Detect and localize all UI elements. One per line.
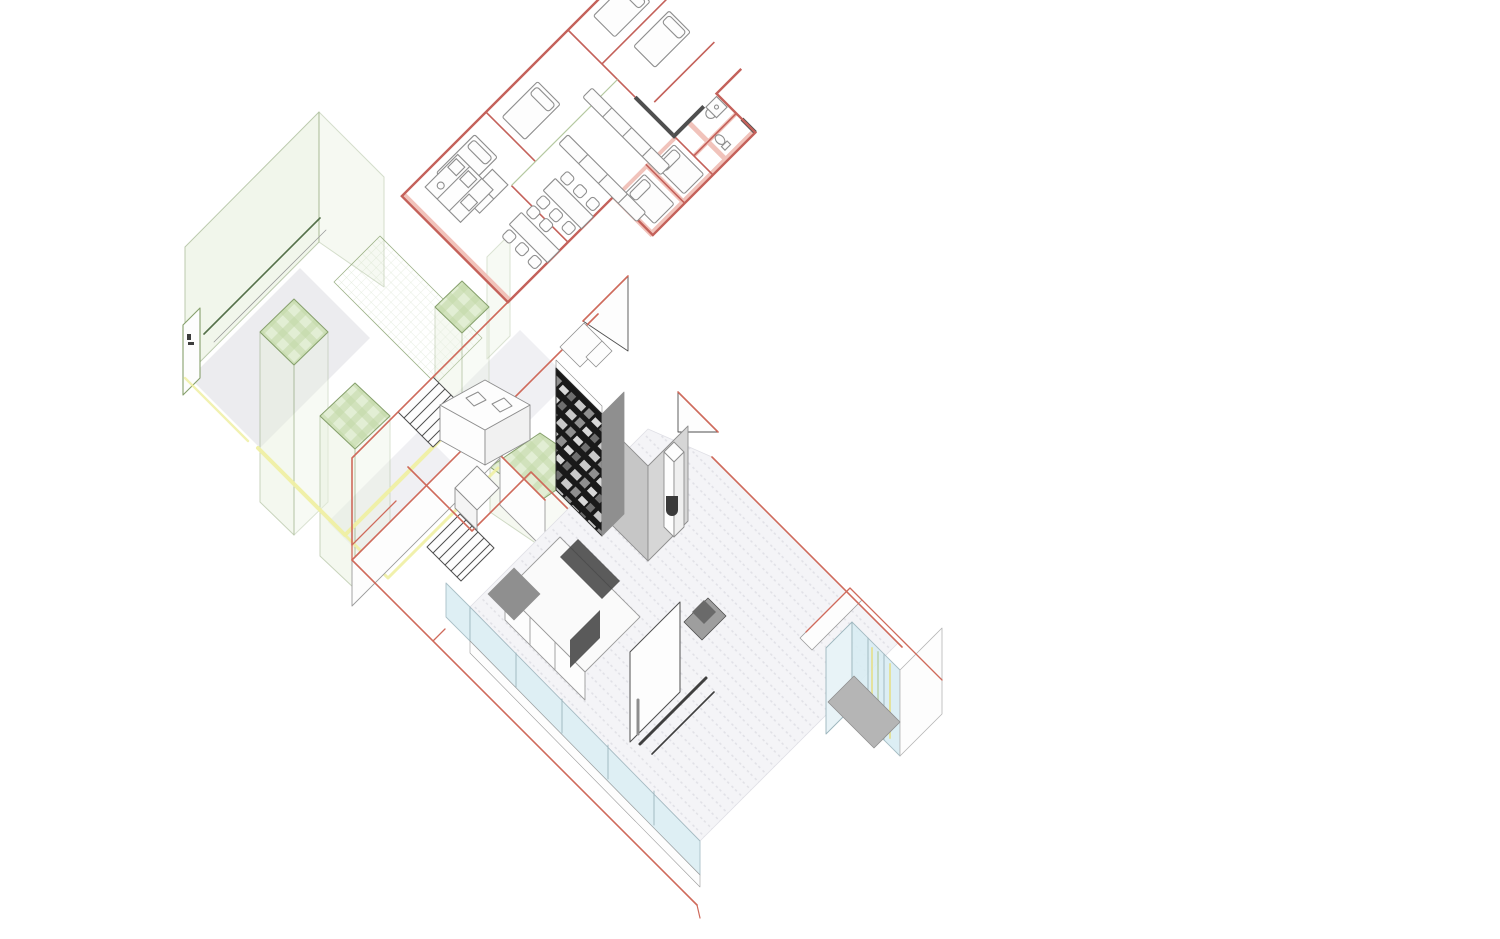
bed [502,82,560,140]
bed [634,11,691,68]
stair-lower [427,514,494,581]
bed [593,0,650,37]
glass-return [446,583,470,641]
red-edge-apex [697,905,700,918]
bookshelf-side [602,392,624,536]
plan-furniture [424,0,768,320]
fireplace-column [664,442,684,537]
green-column-tall-1 [260,299,328,535]
drawing-sheet [0,0,1500,939]
ground-floor-axonometric [183,112,942,918]
fireplace-niche [666,496,678,516]
drawing-canvas [0,0,1500,939]
bay-right-face [900,628,942,756]
